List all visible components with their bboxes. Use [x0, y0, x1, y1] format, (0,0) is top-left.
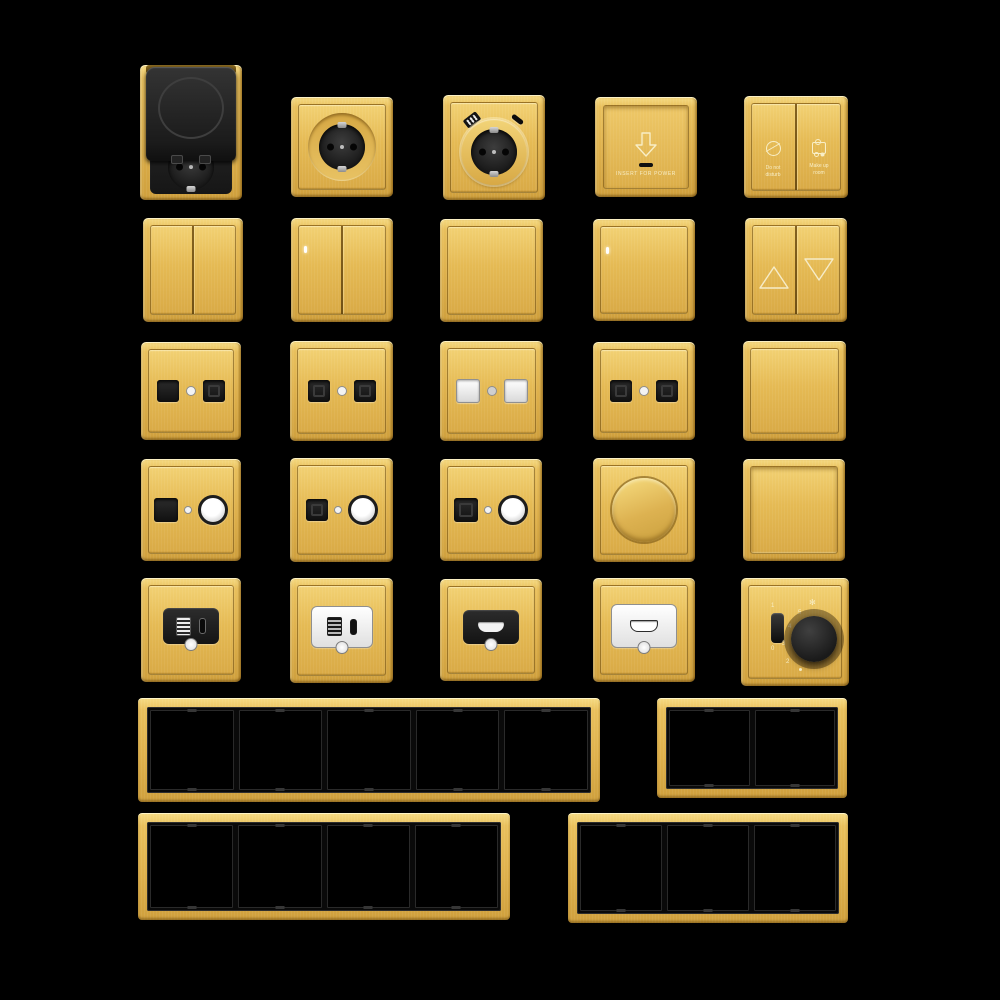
socket-center-pin [340, 145, 344, 149]
two-gang-rocker-switch[interactable] [143, 218, 243, 322]
socket-face [447, 348, 536, 434]
usb-c-port[interactable] [199, 618, 206, 634]
frame-opening [327, 710, 411, 790]
socket-face [298, 104, 386, 190]
dimmer-face [600, 465, 688, 555]
frame-opening [239, 710, 323, 790]
hdmi-socket-black[interactable] [440, 579, 542, 681]
socket-face [297, 348, 386, 434]
socket-face [297, 465, 386, 555]
usb-a-port[interactable] [327, 617, 342, 636]
dimmer-knob[interactable] [612, 478, 676, 542]
usb-charger-socket-white[interactable] [290, 578, 393, 683]
dnd-label: Do not disturb [751, 165, 795, 179]
frame-opening [754, 825, 836, 911]
dual-data-socket[interactable] [290, 341, 393, 441]
socket-face [450, 102, 538, 193]
frame-5-gang[interactable] [138, 698, 600, 802]
socket-face [447, 586, 535, 674]
curtain-blind-switch[interactable] [745, 218, 847, 322]
hdmi-socket-white[interactable] [593, 578, 695, 682]
socket-hole [176, 164, 183, 171]
frame-3-gang[interactable] [568, 813, 848, 923]
mount-dot [335, 641, 348, 654]
frame-opening [504, 710, 588, 790]
coax-connector[interactable] [198, 495, 228, 525]
controller-face: ✻ 1 0 5 4 3 2 [748, 585, 842, 679]
dial-mark: 5 [798, 610, 801, 616]
rocker-face [600, 226, 688, 314]
mount-dot [185, 638, 198, 651]
blank-face [750, 348, 839, 434]
do-not-disturb-rocker[interactable]: Do not disturb [751, 103, 795, 191]
frame-openings [147, 707, 591, 793]
mount-dot [485, 638, 498, 651]
rotary-dimmer[interactable] [593, 458, 695, 562]
coax-connector[interactable] [498, 495, 528, 525]
socket-hole [479, 148, 486, 155]
mount-dot [186, 386, 196, 396]
schuko-outlet [471, 129, 517, 175]
key-card-holder[interactable]: INSERT FOR POWER [595, 97, 697, 197]
rocker-divider [341, 226, 343, 314]
fan-icon: ✻ [809, 598, 816, 607]
blind-up-rocker[interactable] [752, 225, 795, 315]
socket-face [148, 466, 234, 554]
frame-openings [577, 822, 839, 914]
hdmi-module[interactable] [611, 604, 677, 648]
data-port[interactable] [656, 380, 678, 402]
usb-charger-socket-black[interactable] [141, 578, 241, 682]
frame-2-gang[interactable] [657, 698, 847, 798]
card-holder-label: INSERT FOR POWER [604, 171, 688, 177]
triangle-down-icon [802, 256, 836, 284]
triangle-up-icon [757, 263, 791, 291]
frame-opening [669, 710, 750, 786]
data-tv-combo-socket[interactable] [290, 458, 393, 562]
lid-hinge [171, 155, 183, 164]
hdmi-port[interactable] [478, 622, 504, 632]
mount-dot [639, 386, 649, 396]
schuko-socket-flip-cover[interactable] [140, 65, 242, 200]
frame-opening [327, 825, 410, 908]
led-indicator [304, 246, 307, 253]
data-port[interactable] [610, 380, 632, 402]
two-gang-rocker-switch-led[interactable] [291, 218, 393, 322]
frame-opening [755, 710, 836, 786]
mur-label: Make up room [797, 163, 841, 177]
data-port[interactable] [504, 379, 528, 403]
one-gang-rocker-switch[interactable] [440, 219, 543, 322]
frame-opening [150, 710, 234, 790]
socket-center-pin [189, 165, 193, 169]
schuko-socket[interactable] [291, 97, 393, 197]
led-indicator [606, 247, 609, 254]
one-gang-rocker-switch-led[interactable] [593, 219, 695, 321]
data-port[interactable] [154, 498, 178, 522]
usb-module[interactable] [163, 608, 219, 644]
socket-center-pin [492, 150, 496, 154]
make-up-room-rocker[interactable]: Make up room [797, 103, 841, 191]
mount-dot [184, 506, 192, 514]
tel-data-socket[interactable] [141, 342, 241, 440]
socket-hole [502, 148, 509, 155]
frame-opening [238, 825, 321, 908]
data-port[interactable] [454, 498, 478, 522]
blind-down-rocker[interactable] [797, 225, 840, 315]
frame-opening [416, 710, 500, 790]
card-slot[interactable] [639, 163, 653, 167]
socket-face [600, 349, 688, 433]
service-switch-dnd-mur[interactable]: Do not disturb Make up room [744, 96, 848, 198]
dial-mark: 3 [782, 641, 785, 647]
socket-recess [308, 113, 376, 181]
data-port[interactable] [157, 380, 179, 402]
insert-card-arrow-down-icon [631, 132, 661, 158]
data-tv-combo-socket[interactable] [440, 459, 542, 561]
usb-c-port[interactable] [350, 619, 357, 635]
frame-openings [147, 822, 501, 911]
socket-hole [199, 164, 206, 171]
data-port[interactable] [354, 380, 376, 402]
blank-plate[interactable] [743, 341, 846, 441]
fan-dial-knob[interactable] [791, 616, 837, 662]
dial-mark: 2 [786, 659, 789, 665]
socket-hole [327, 144, 334, 151]
card-slot-face[interactable]: INSERT FOR POWER [603, 105, 689, 189]
dial-dot [799, 668, 802, 671]
schuko-outlet [319, 124, 365, 170]
hdmi-port[interactable] [630, 620, 658, 632]
data-port[interactable] [456, 379, 480, 403]
product-grid: INSERT FOR POWER Do not disturb Make up … [0, 0, 1000, 1000]
fan-speed-controller[interactable]: ✻ 1 0 5 4 3 2 [741, 578, 849, 686]
data-port[interactable] [308, 380, 330, 402]
mount-dot [487, 386, 497, 396]
frame-openings [666, 707, 838, 789]
data-port[interactable] [203, 380, 225, 402]
usb-module[interactable] [311, 606, 373, 648]
lid-hinge [199, 155, 211, 164]
coax-connector[interactable] [348, 495, 378, 525]
schuko-socket-usb[interactable] [443, 95, 545, 200]
power-toggle[interactable] [771, 613, 784, 643]
toggle-on-label: 1 [771, 603, 774, 609]
mount-dot [638, 641, 651, 654]
dual-data-socket-white[interactable] [440, 341, 543, 441]
usb-a-port[interactable] [176, 617, 191, 636]
blank-plate[interactable] [743, 459, 845, 561]
dual-data-socket-black[interactable] [593, 342, 695, 440]
socket-face [447, 466, 535, 554]
socket-face [148, 349, 234, 433]
blank-face [750, 466, 838, 554]
socket-face [600, 585, 688, 675]
frame-opening [580, 825, 662, 911]
mount-dot [334, 506, 342, 514]
frame-opening [667, 825, 749, 911]
data-port[interactable] [306, 499, 328, 521]
hdmi-module[interactable] [463, 610, 519, 644]
rocker-face [447, 226, 536, 315]
data-tv-combo-socket[interactable] [141, 459, 241, 561]
toggle-off-label: 0 [771, 646, 774, 652]
frame-opening [150, 825, 233, 908]
socket-raised-ring [461, 119, 527, 185]
dial-mark: 4 [788, 624, 791, 630]
flip-cover-lid[interactable] [146, 67, 236, 161]
frame-opening [415, 825, 498, 908]
socket-face [297, 585, 386, 676]
mount-dot [337, 386, 347, 396]
usb-c-icon[interactable] [511, 114, 524, 126]
socket-face [148, 585, 234, 675]
frame-4-gang[interactable] [138, 813, 510, 920]
mount-dot [484, 506, 492, 514]
make-up-room-icon [812, 142, 826, 154]
rocker-divider [192, 226, 194, 314]
do-not-disturb-icon [766, 141, 781, 156]
socket-hole [350, 144, 357, 151]
lid-oval-emboss [158, 77, 224, 139]
